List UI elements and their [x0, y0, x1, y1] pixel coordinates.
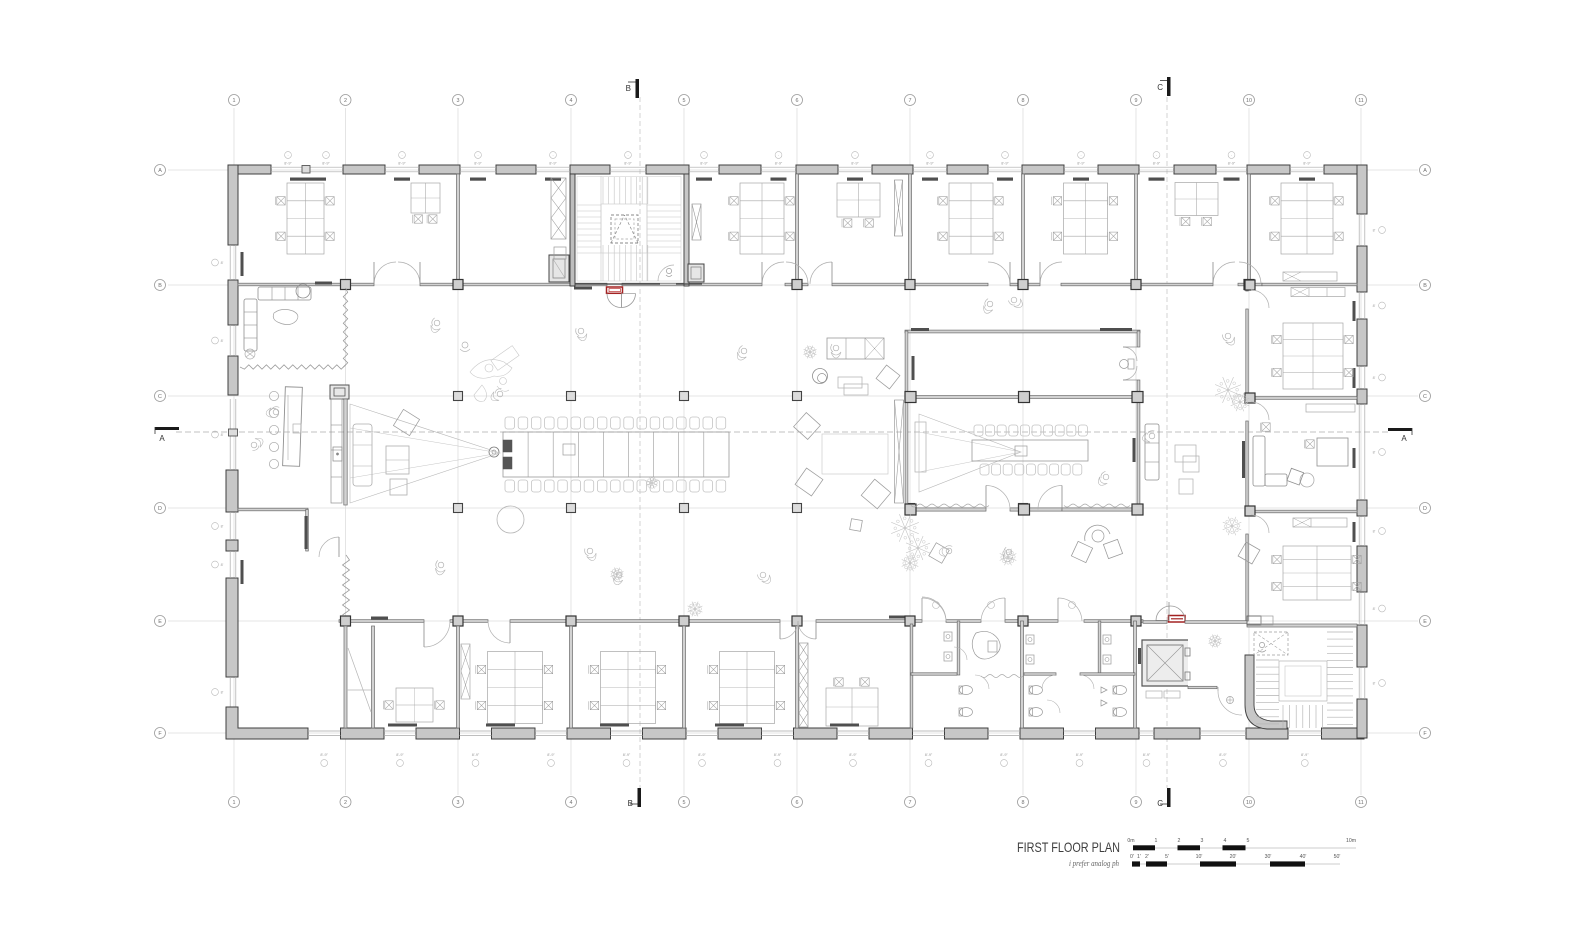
svg-text:A: A — [1423, 168, 1427, 174]
svg-text:i prefer analog ph: i prefer analog ph — [1069, 859, 1119, 868]
svg-text:6: 6 — [796, 800, 799, 806]
svg-text:3: 3 — [1201, 838, 1204, 844]
svg-text:7: 7 — [909, 800, 912, 806]
svg-text:9: 9 — [1135, 800, 1138, 806]
svg-text:8': 8' — [221, 563, 224, 567]
svg-text:·: · — [627, 153, 628, 158]
svg-text:8: 8 — [1022, 800, 1025, 806]
svg-text:·: · — [552, 153, 553, 158]
svg-text:10: 10 — [1246, 800, 1252, 806]
svg-text:8': 8' — [1373, 229, 1376, 233]
svg-text:8'-9": 8'-9" — [1076, 753, 1084, 757]
svg-text:8'-9": 8'-9" — [320, 753, 328, 757]
svg-text:8': 8' — [221, 261, 224, 265]
svg-text:5: 5 — [683, 98, 686, 104]
svg-text:8': 8' — [221, 691, 224, 695]
svg-text:8'-9": 8'-9" — [1077, 162, 1085, 166]
svg-text:10m: 10m — [1346, 838, 1356, 844]
svg-text:6: 6 — [796, 98, 799, 104]
svg-text:2: 2 — [1178, 838, 1181, 844]
svg-text:5: 5 — [683, 800, 686, 806]
svg-text:8': 8' — [1373, 451, 1376, 455]
svg-text:4: 4 — [570, 98, 573, 104]
svg-text:8'-9": 8'-9" — [700, 162, 708, 166]
svg-text:11: 11 — [1358, 98, 1364, 104]
svg-text:·: · — [929, 153, 930, 158]
svg-text:8'-9": 8'-9" — [474, 162, 482, 166]
svg-text:5': 5' — [1165, 854, 1169, 860]
svg-text:8': 8' — [221, 339, 224, 343]
svg-text:5: 5 — [1247, 838, 1250, 844]
svg-text:8'-9": 8'-9" — [623, 753, 631, 757]
svg-text:0': 0' — [1130, 854, 1134, 860]
svg-text:B: B — [626, 84, 631, 93]
svg-text:8'-9": 8'-9" — [774, 753, 782, 757]
svg-text:8'-9": 8'-9" — [851, 162, 859, 166]
svg-text:·: · — [1080, 153, 1081, 158]
svg-text:9: 9 — [1135, 98, 1138, 104]
svg-text:20': 20' — [1230, 854, 1237, 860]
svg-text:8': 8' — [221, 525, 224, 529]
svg-text:8'-9": 8'-9" — [547, 753, 555, 757]
svg-text:2': 2' — [1145, 854, 1149, 860]
svg-text:7: 7 — [909, 98, 912, 104]
svg-text:8'-9": 8'-9" — [284, 162, 292, 166]
svg-text:1': 1' — [1137, 854, 1141, 860]
svg-text:B: B — [628, 799, 633, 808]
svg-text:A: A — [158, 168, 162, 174]
svg-text:D: D — [158, 506, 162, 512]
svg-text:B: B — [158, 283, 162, 289]
svg-text:A: A — [1401, 434, 1407, 443]
svg-text:8': 8' — [1373, 304, 1376, 308]
svg-text:C: C — [1423, 394, 1427, 400]
svg-text:·: · — [477, 153, 478, 158]
svg-text:E: E — [1423, 619, 1427, 625]
svg-text:2: 2 — [344, 800, 347, 806]
svg-text:8'-9": 8'-9" — [1228, 162, 1236, 166]
svg-text:8'-9": 8'-9" — [624, 162, 632, 166]
svg-text:8'-9": 8'-9" — [472, 753, 480, 757]
svg-text:8'-9": 8'-9" — [775, 162, 783, 166]
svg-text:C: C — [1157, 83, 1163, 92]
svg-text:8': 8' — [1373, 607, 1376, 611]
svg-text:8'-9": 8'-9" — [1001, 162, 1009, 166]
svg-text:3: 3 — [457, 800, 460, 806]
svg-text:·: · — [1306, 153, 1307, 158]
svg-text:10': 10' — [1196, 854, 1203, 860]
svg-text:8'-9": 8'-9" — [1301, 753, 1309, 757]
svg-text:8'-9": 8'-9" — [925, 753, 933, 757]
svg-text:·: · — [1156, 153, 1157, 158]
svg-text:8'-9": 8'-9" — [398, 162, 406, 166]
svg-text:C: C — [1157, 799, 1163, 808]
svg-text:D: D — [1423, 506, 1427, 512]
svg-text:8'-9": 8'-9" — [849, 753, 857, 757]
svg-text:11: 11 — [1358, 800, 1364, 806]
svg-text:50': 50' — [1334, 854, 1341, 860]
svg-text:·: · — [854, 153, 855, 158]
svg-text:3: 3 — [457, 98, 460, 104]
svg-text:8': 8' — [1373, 376, 1376, 380]
svg-text:4: 4 — [570, 800, 573, 806]
svg-text:2: 2 — [344, 98, 347, 104]
svg-text:1: 1 — [233, 800, 236, 806]
svg-text:8'-9": 8'-9" — [549, 162, 557, 166]
svg-text:1: 1 — [233, 98, 236, 104]
svg-text:8'-9": 8'-9" — [322, 162, 330, 166]
svg-text:·: · — [778, 153, 779, 158]
svg-text:4: 4 — [1224, 838, 1227, 844]
svg-text:·: · — [1004, 153, 1005, 158]
svg-text:C: C — [158, 394, 162, 400]
svg-text:8'-9": 8'-9" — [1143, 753, 1151, 757]
svg-text:8': 8' — [1373, 530, 1376, 534]
svg-text:·: · — [401, 153, 402, 158]
svg-text:·: · — [287, 153, 288, 158]
svg-text:A: A — [159, 434, 165, 443]
svg-text:E: E — [158, 619, 162, 625]
svg-text:0m: 0m — [1127, 838, 1134, 844]
svg-text:8'-9": 8'-9" — [926, 162, 934, 166]
svg-text:8'-9": 8'-9" — [1219, 753, 1227, 757]
svg-text:B: B — [1423, 283, 1427, 289]
svg-text:1: 1 — [1155, 838, 1158, 844]
svg-text:·: · — [703, 153, 704, 158]
svg-text:10: 10 — [1246, 98, 1252, 104]
svg-text:·: · — [1231, 153, 1232, 158]
svg-text:8'-9": 8'-9" — [1153, 162, 1161, 166]
svg-text:8': 8' — [1373, 682, 1376, 686]
svg-text:8'-9": 8'-9" — [1303, 162, 1311, 166]
svg-text:30': 30' — [1265, 854, 1272, 860]
svg-text:40': 40' — [1300, 854, 1307, 860]
svg-text:8': 8' — [221, 433, 224, 437]
svg-text:8'-9": 8'-9" — [396, 753, 404, 757]
svg-text:8: 8 — [1022, 98, 1025, 104]
svg-text:FIRST FLOOR PLAN: FIRST FLOOR PLAN — [1017, 839, 1120, 855]
svg-text:8'-9": 8'-9" — [698, 753, 706, 757]
svg-text:8'-9": 8'-9" — [1000, 753, 1008, 757]
svg-text:·: · — [325, 153, 326, 158]
